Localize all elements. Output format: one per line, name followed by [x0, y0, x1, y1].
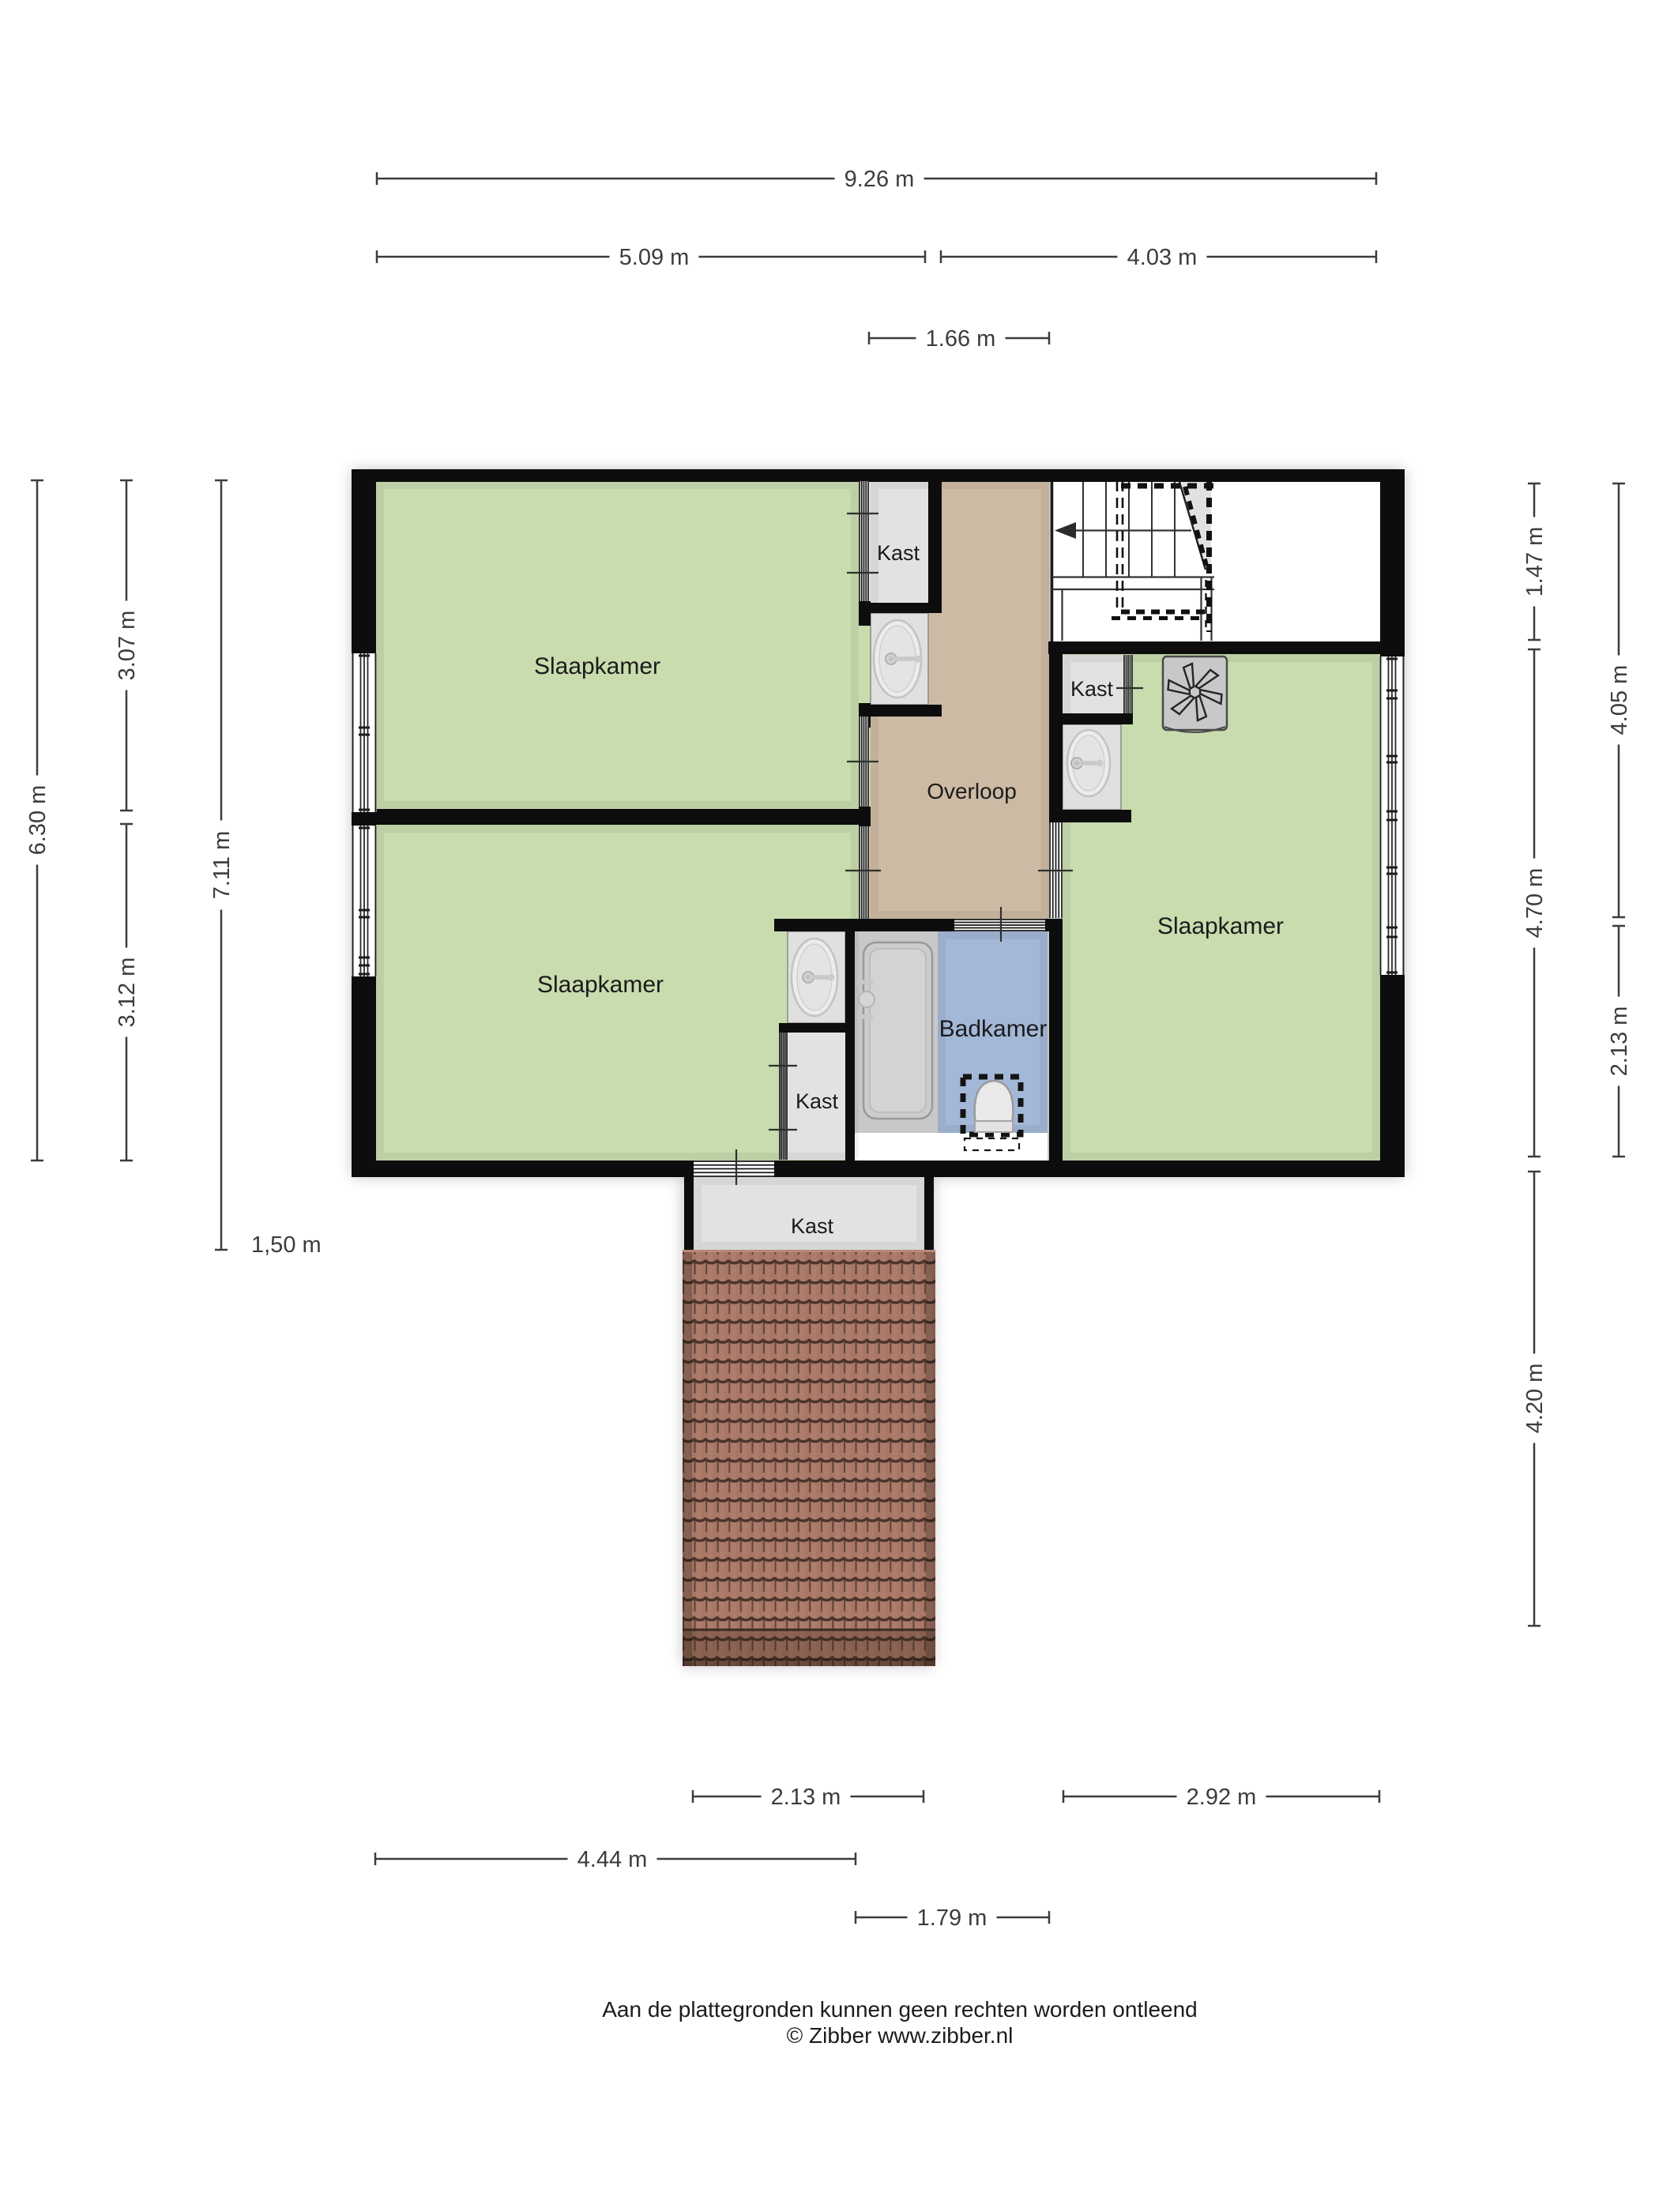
- svg-text:4.44 m: 4.44 m: [577, 1847, 648, 1872]
- svg-text:9.26 m: 9.26 m: [845, 167, 915, 192]
- svg-text:4.20 m: 4.20 m: [1522, 1364, 1548, 1434]
- svg-text:6.30 m: 6.30 m: [25, 785, 51, 856]
- svg-text:1,50 m: 1,50 m: [251, 1232, 322, 1258]
- svg-text:2.13 m: 2.13 m: [771, 1785, 841, 1810]
- svg-text:Aan de plattegronden kunnen ge: Aan de plattegronden kunnen geen rechten…: [602, 1997, 1197, 2022]
- svg-text:Slaapkamer: Slaapkamer: [534, 653, 660, 679]
- svg-text:Slaapkamer: Slaapkamer: [537, 972, 664, 998]
- svg-text:1.79 m: 1.79 m: [917, 1905, 987, 1931]
- svg-text:© Zibber www.zibber.nl: © Zibber www.zibber.nl: [787, 2023, 1014, 2048]
- svg-text:Kast: Kast: [1070, 677, 1114, 701]
- svg-text:Kast: Kast: [791, 1214, 834, 1238]
- svg-text:5.09 m: 5.09 m: [619, 245, 690, 270]
- svg-text:2.92 m: 2.92 m: [1187, 1785, 1257, 1810]
- svg-text:Slaapkamer: Slaapkamer: [1157, 913, 1284, 939]
- svg-text:1.47 m: 1.47 m: [1522, 527, 1548, 597]
- svg-text:3.07 m: 3.07 m: [115, 611, 140, 681]
- svg-text:4.03 m: 4.03 m: [1127, 245, 1198, 270]
- svg-text:4.70 m: 4.70 m: [1522, 868, 1548, 939]
- svg-text:1.66 m: 1.66 m: [926, 326, 996, 352]
- svg-text:7.11 m: 7.11 m: [209, 831, 235, 900]
- svg-text:Kast: Kast: [796, 1089, 839, 1113]
- svg-text:2.13 m: 2.13 m: [1607, 1006, 1632, 1077]
- svg-text:4.05 m: 4.05 m: [1607, 665, 1632, 735]
- svg-text:3.12 m: 3.12 m: [115, 957, 140, 1028]
- svg-text:Kast: Kast: [877, 541, 920, 565]
- svg-text:Overloop: Overloop: [927, 779, 1017, 803]
- svg-text:Badkamer: Badkamer: [939, 1016, 1048, 1042]
